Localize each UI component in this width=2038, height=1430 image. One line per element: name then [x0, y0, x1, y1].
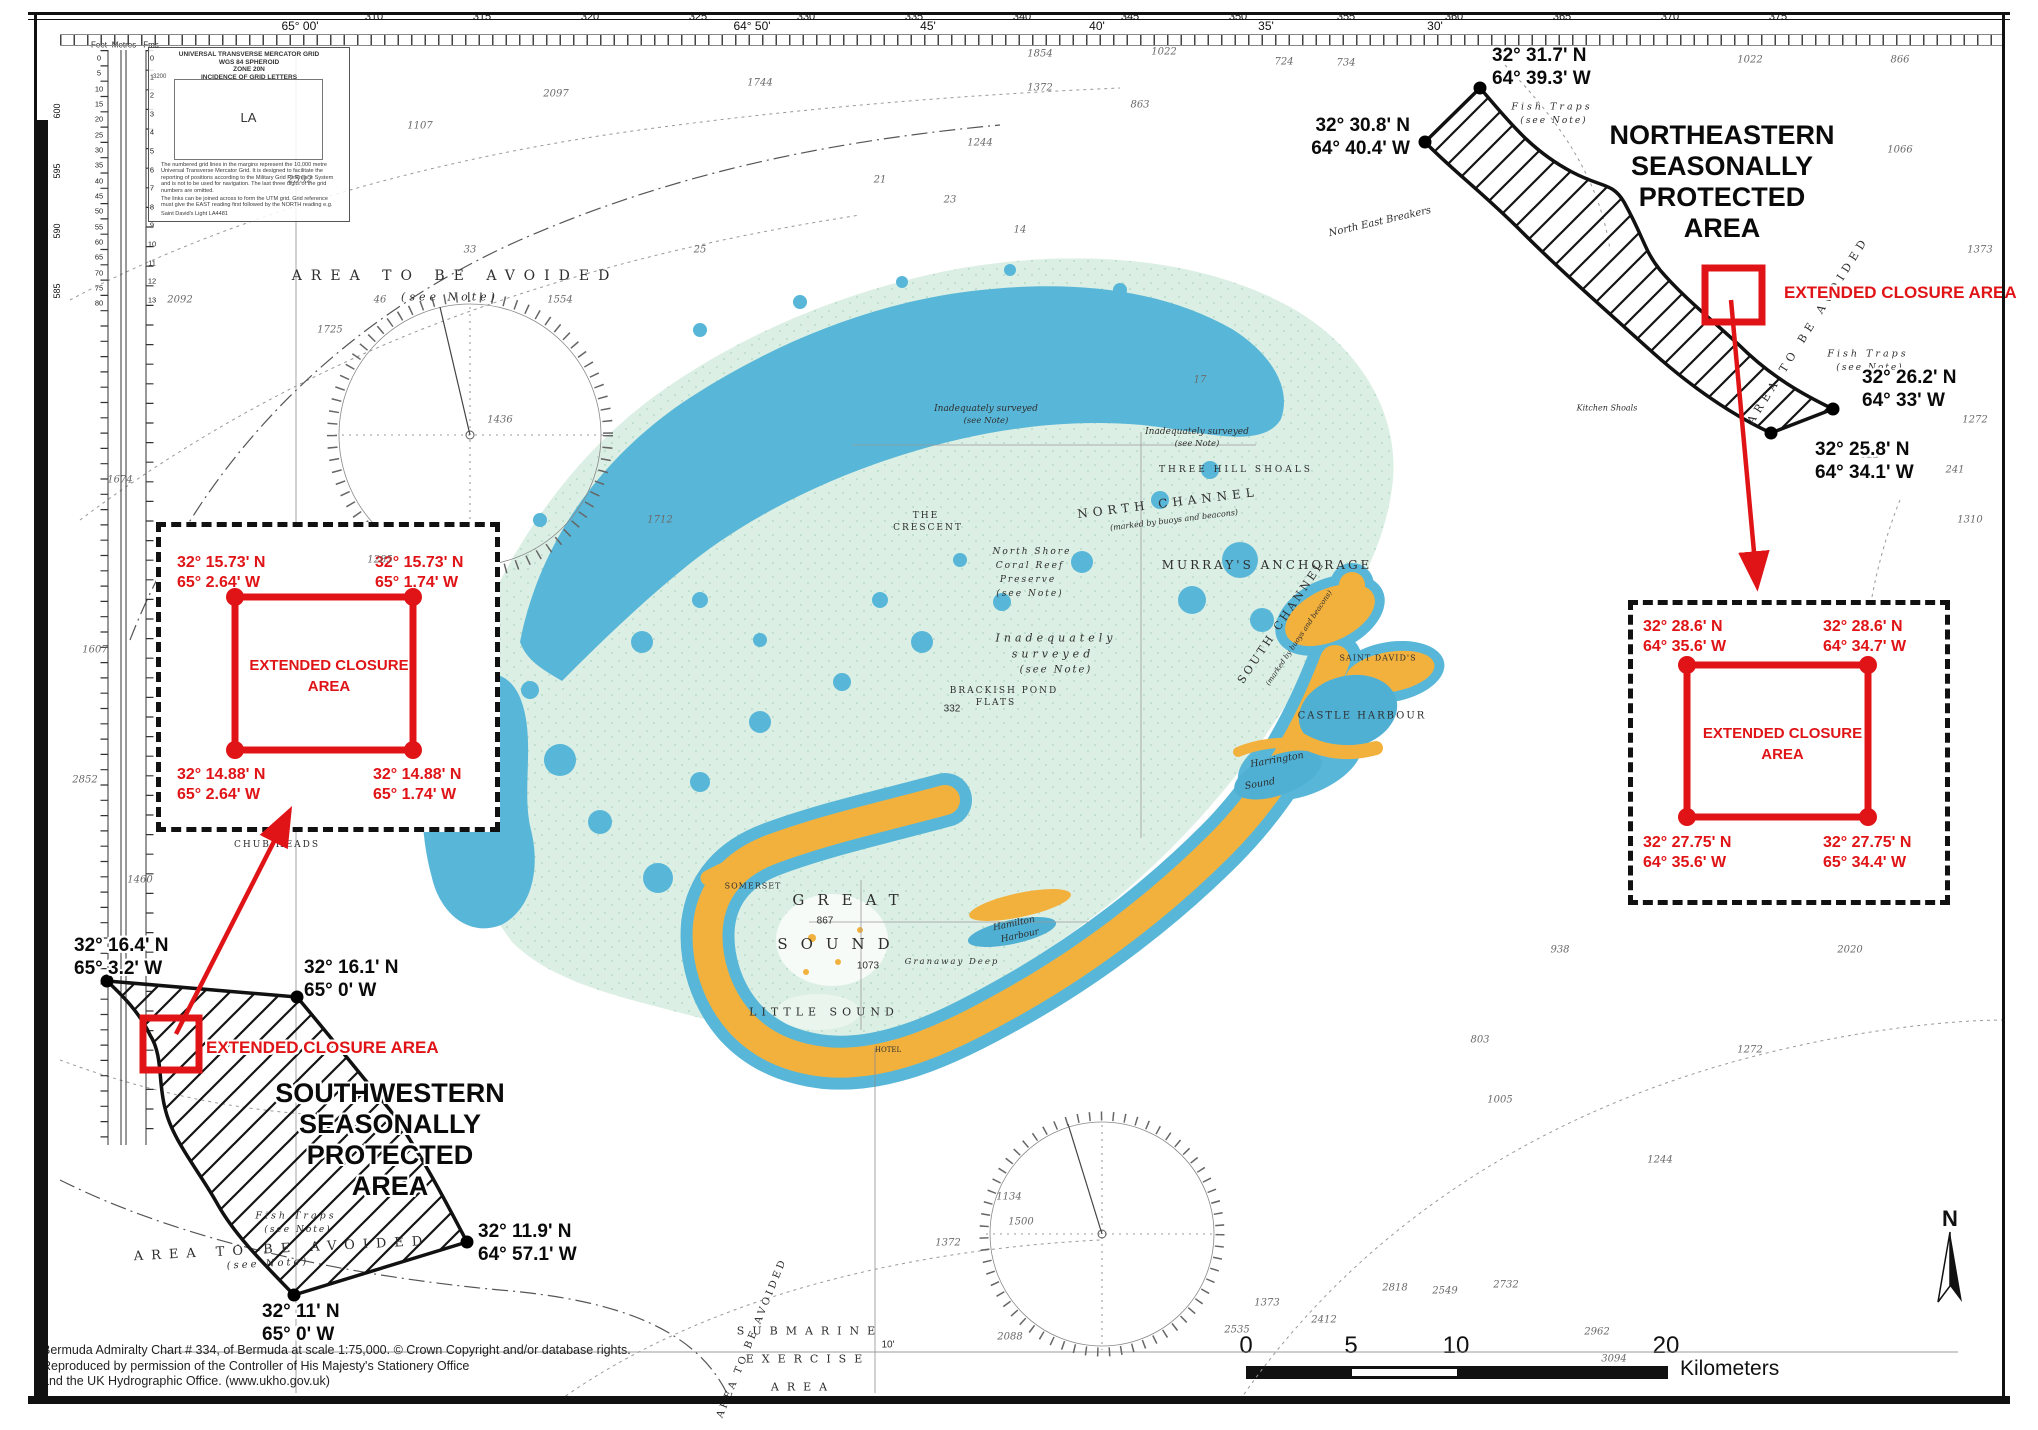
utm-note-title: UNIVERSAL TRANSVERSE MERCATOR GRID WGS 8… [149, 51, 349, 81]
sw-inset-closure-title: EXTENDED CLOSURE AREA [240, 655, 418, 697]
nautical-chart-page: 32° 15.73' N 65° 2.64' W 32° 15.73' N 65… [0, 0, 2038, 1430]
ne-inset-closure-title: EXTENDED CLOSURE AREA [1692, 723, 1873, 765]
utm-grid-letter: LA [175, 110, 322, 125]
sw-inset-coord-bl: 32° 14.88' N 65° 2.64' W [177, 765, 265, 805]
sw-inset-coord-tl: 32° 15.73' N 65° 2.64' W [177, 553, 265, 593]
frame-right [2002, 12, 2005, 1404]
ne-inset-coord-tr: 32° 28.6' N 64° 34.7' W [1823, 617, 1906, 657]
title-line: AREA [1572, 213, 1872, 244]
coordinate-lat: 32° 28.6' N [1823, 617, 1906, 637]
copyright-note: Bermuda Admiralty Chart # 334, of Bermud… [42, 1343, 631, 1390]
coordinate-lat: 32° 27.75' N [1823, 833, 1911, 853]
coordinate-lon: 65° 1.74' W [373, 785, 461, 805]
sw-closure-inset: 32° 15.73' N 65° 2.64' W 32° 15.73' N 65… [156, 522, 500, 832]
coordinate-lon: 64° 34.7' W [1823, 637, 1906, 657]
utm-note-text: The numbered grid lines in the margins r… [161, 162, 341, 219]
coordinate-lat: 32° 15.73' N [375, 553, 463, 573]
utm-grid-number: 3200 [153, 74, 166, 80]
ne-protected-area-title: NORTHEASTERN SEASONALLY PROTECTED AREA [1572, 120, 1872, 244]
ne-vertex-coord: 32° 31.7' N64° 39.3' W [1492, 44, 1591, 90]
sw-extended-closure-label: EXTENDED CLOSURE AREA [206, 1038, 439, 1058]
sw-protected-area-title: SOUTHWESTERN SEASONALLY PROTECTED AREA [240, 1078, 540, 1202]
ne-closure-inset: 32° 28.6' N 64° 35.6' W 32° 28.6' N 64° … [1628, 600, 1950, 905]
sw-vertex-coord: 32° 16.4' N65° 3.2' W [74, 934, 169, 980]
frame-top-inner [28, 19, 2010, 20]
title-line: PROTECTED [1572, 182, 1872, 213]
closure-title-line: EXTENDED CLOSURE [240, 655, 418, 676]
ne-inset-coord-tl: 32° 28.6' N 64° 35.6' W [1643, 617, 1726, 657]
sw-vertex-coord: 32° 11.9' N64° 57.1' W [478, 1220, 577, 1266]
utm-grid-note-box: UNIVERSAL TRANSVERSE MERCATOR GRID WGS 8… [148, 47, 350, 222]
ne-vertex-coord: 32° 25.8' N64° 34.1' W [1815, 438, 1914, 484]
ne-extended-closure-label: EXTENDED CLOSURE AREA [1784, 283, 2017, 303]
coordinate-lat: 32° 14.88' N [373, 765, 461, 785]
title-line: SOUTHWESTERN [240, 1078, 540, 1109]
coordinate-lat: 32° 28.6' N [1643, 617, 1726, 637]
copyright-line: Bermuda Admiralty Chart # 334, of Bermud… [42, 1343, 631, 1359]
coordinate-lat: 32° 14.88' N [177, 765, 265, 785]
sw-inset-coord-tr: 32° 15.73' N 65° 1.74' W [375, 553, 463, 593]
copyright-line: Reproduced by permission of the Controll… [42, 1359, 631, 1375]
closure-title-line: EXTENDED CLOSURE [1692, 723, 1873, 744]
ne-inset-coord-bl: 32° 27.75' N 64° 35.6' W [1643, 833, 1731, 873]
coordinate-lon: 65° 34.4' W [1823, 853, 1911, 873]
title-line: SEASONALLY [1572, 151, 1872, 182]
title-line: PROTECTED [240, 1140, 540, 1171]
coordinate-lat: 32° 15.73' N [177, 553, 265, 573]
frame-top-outer [28, 12, 2010, 15]
title-line: AREA [240, 1171, 540, 1202]
coordinate-lon: 64° 35.6' W [1643, 853, 1731, 873]
title-line: SEASONALLY [240, 1109, 540, 1140]
coordinate-lon: 65° 2.64' W [177, 573, 265, 593]
sw-vertex-coord: 32° 16.1' N65° 0' W [304, 956, 399, 1002]
coordinate-lat: 32° 27.75' N [1643, 833, 1731, 853]
ne-vertex-coord: 32° 26.2' N64° 33' W [1862, 366, 1957, 412]
closure-title-line: AREA [1692, 744, 1873, 765]
frame-left-bar [34, 120, 48, 1396]
sw-vertex-coord: 32° 11' N65° 0' W [262, 1300, 340, 1346]
closure-title-line: AREA [240, 676, 418, 697]
utm-grid-letter-box: LA [174, 79, 323, 160]
ne-vertex-coord: 32° 30.8' N64° 40.4' W [1270, 114, 1410, 160]
sw-inset-coord-br: 32° 14.88' N 65° 1.74' W [373, 765, 461, 805]
north-arrow-icon [1938, 1232, 1962, 1302]
coordinate-lon: 64° 35.6' W [1643, 637, 1726, 657]
coordinate-lon: 65° 1.74' W [375, 573, 463, 593]
frame-bottom [28, 1396, 2010, 1404]
ne-inset-coord-br: 32° 27.75' N 65° 34.4' W [1823, 833, 1911, 873]
frame-left-top [34, 12, 37, 122]
title-line: NORTHEASTERN [1572, 120, 1872, 151]
compass-rose-south [984, 1116, 1220, 1352]
top-minute-tick-band [60, 34, 2005, 46]
coordinate-lon: 65° 2.64' W [177, 785, 265, 805]
copyright-line: and the UK Hydrographic Office. (www.ukh… [42, 1374, 631, 1390]
